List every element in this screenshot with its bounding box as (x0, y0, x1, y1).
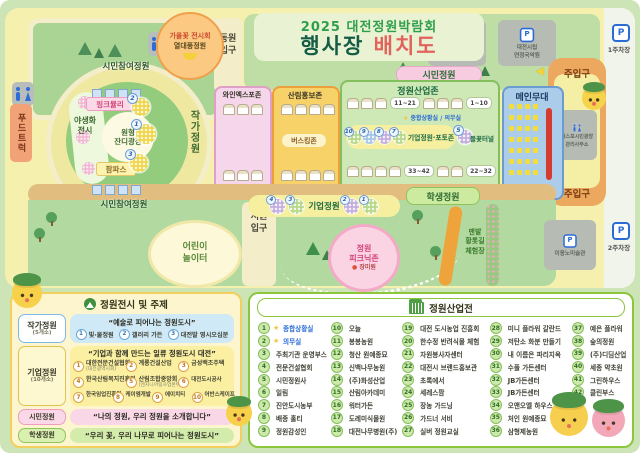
booth-range-label: 1~10 (470, 100, 488, 107)
booth-label: 한수정 반려식물 체험 (420, 336, 479, 346)
tent-icon (309, 170, 321, 181)
seat-block (533, 148, 538, 153)
item-label: 에이치티 (165, 392, 185, 398)
booth-icon (92, 185, 102, 195)
booth-number: 32 (490, 374, 502, 386)
picnic-label2: 피크닉존 (349, 254, 378, 264)
booth-range-pill: 11~21 (390, 97, 420, 109)
booth-number: 21 (402, 348, 414, 360)
seat-block (525, 126, 530, 131)
corporate-garden-item: 6 대전도시공사 (178, 377, 218, 389)
item-number: 5 (126, 377, 137, 388)
item-label: 빛·물정원 (89, 330, 114, 339)
booth-number: 19 (402, 322, 414, 334)
seat-block (509, 126, 514, 131)
seat-block (525, 115, 530, 120)
booth-number: 26 (402, 412, 414, 424)
industry-booth-item: 31수풀 가든센터 (490, 360, 568, 373)
industry-booth-item: 1★종합상황실 (258, 322, 327, 335)
seat-block (525, 148, 530, 153)
stage-seating (509, 104, 543, 184)
booth-icon (131, 185, 141, 195)
seat-block (525, 170, 530, 175)
barefoot-label3: 체험장 (465, 247, 484, 256)
industry-booth-item: 24세레스팜 (402, 386, 486, 399)
booth-label: 종합상황실 (283, 323, 313, 333)
booth-label: 워터가든 (349, 400, 373, 410)
garden-number-badge: 10 (344, 127, 354, 137)
industry-booth-item: 38숲의정원 (572, 335, 624, 348)
booth-number: 10 (331, 322, 343, 334)
main-stage-title: 메인무대 (502, 90, 562, 103)
seat-block (533, 104, 538, 109)
industry-booth-item: 9정원감성인 (258, 424, 327, 437)
restroom-icon (572, 122, 583, 134)
industry-booth-item: 7진안도시농부 (258, 399, 327, 412)
seat-block (525, 104, 530, 109)
exhibit-booth-row (92, 180, 144, 199)
booth-number: 28 (490, 322, 502, 334)
row-count: (5개소) (33, 330, 52, 336)
tent-row (280, 170, 336, 181)
booth-number: 15 (331, 386, 343, 398)
title-card: 2025 대전정원박람회 행사장 배치도 (254, 13, 484, 61)
booth-label: 주최기관 운영부스 (276, 349, 327, 359)
corporate-garden-item: 9 에이치티 (152, 392, 192, 403)
booth-label: 장농 가드닝 (420, 400, 453, 410)
booth-label: 저탄소 화분 만들기 (508, 336, 561, 346)
wildflower-label1: 야생화 (74, 116, 96, 126)
playground-label1: 어린이 (183, 242, 208, 254)
booth-label: 대전나무병원(주) (349, 426, 398, 436)
pink-muhly-label: 핑크뮬리 (96, 99, 124, 110)
participation-garden-top-label: 시민참여정원 (86, 60, 166, 72)
garden-number-badge: 3 (125, 149, 136, 160)
booth-label: 의무실 (283, 336, 301, 346)
tent-icon (423, 98, 435, 109)
seat-block (533, 159, 538, 164)
booth-label: JB가든센터 (508, 375, 540, 385)
poster-title-line2b: 배치도 (374, 34, 438, 58)
wildflower-label: 야생화 전시 (66, 116, 104, 137)
booth-number: 8 (258, 412, 270, 424)
seat-block (517, 159, 522, 164)
booth-range-label: 22~32 (470, 168, 492, 175)
booth-number: 35 (490, 412, 502, 424)
industry-booth-item: 19대전 도시농업 진흥회 (402, 322, 486, 335)
student-garden-pill: 학생정원 (406, 187, 480, 205)
tent-icon (323, 104, 335, 115)
legend-row-citizen: 시민정원 “나의 정원, 우리 정원을 소개합니다” (18, 409, 234, 424)
autumn-exhibit-badge: 가을꽃 전시회 열대풍정원 (156, 12, 224, 80)
booth-label: 숲의정원 (590, 336, 614, 346)
booth-label: 대전시 브랜드홍보관 (420, 362, 477, 372)
star-icon: ★ (273, 337, 280, 345)
legend-row-artist: 작가정원 (5개소) “예술로 피어나는 정원도시” 1 빛·물정원 2 (18, 314, 234, 343)
gugak-label1: 대전시립 (517, 45, 538, 52)
booth-label: (주)디딤산업 (590, 349, 626, 359)
garden-spot-icon: 1 (363, 199, 378, 214)
booth-label: 가드너 서비 (420, 413, 453, 423)
booth-label: 예은 플라워 (590, 323, 623, 333)
park-emblem-icon (84, 298, 96, 310)
booth-label: 미니 플라워 갈란드 (508, 323, 561, 333)
item-number: 2 (126, 361, 137, 372)
booth-number: 16 (331, 399, 343, 411)
booth-number: 34 (490, 399, 502, 411)
legend-row-corporate: 기업정원 (10개소) “기업과 함께 만드는 일류 정원도시 대전” 1 대한… (18, 346, 234, 406)
industry-booth-item: 21자원봉사자센터 (402, 348, 486, 361)
picnic-label1: 정원 (357, 244, 372, 254)
booth-number: 33 (490, 386, 502, 398)
industry-booth-item: 2★의무실 (258, 335, 327, 348)
item-label: 갤러리 가든 (132, 330, 163, 339)
seat-block (517, 126, 522, 131)
tent-icon (451, 166, 463, 177)
office-label1: 엑스포시민광장 (561, 134, 593, 141)
mascot-character (582, 86, 606, 110)
industry-booth-item: 26가드너 서비 (402, 412, 486, 425)
booth-number: 27 (402, 425, 414, 437)
tent-icon (281, 170, 293, 181)
parking-icon: P (563, 234, 577, 248)
industry-booth-item: 27실버 정원교실 (402, 424, 486, 437)
seat-block (509, 115, 514, 120)
parking-icon: P (520, 28, 534, 42)
item-number: 4 (73, 377, 84, 388)
poster-title-line1: 2025 대전정원박람회 (301, 16, 437, 35)
poster-title-line2a: 행사장 (300, 34, 364, 58)
industry-booth-item: 37예은 플라워 (572, 322, 624, 335)
tent-icon (251, 104, 263, 115)
booth-number: 24 (402, 386, 414, 398)
corp-photo-band: 10 9 8 7 기업정원·포토존 (346, 125, 456, 149)
restroom-icon (12, 82, 34, 106)
industry-booth-item: 23초록에서 (402, 373, 486, 386)
wine-expo-zone-title: 와인엑스포존 (214, 90, 270, 100)
corp-photo-label: 기업정원·포토존 (408, 132, 454, 142)
item-label: 대전발 영시오십분 (181, 330, 229, 339)
booth-range-label: 33~42 (408, 168, 430, 175)
booth-number: 11 (331, 335, 343, 347)
booth-number: 36 (490, 425, 502, 437)
booth-range-pill: 22~32 (466, 165, 496, 177)
tent-icon (389, 166, 401, 177)
booth-label: 도레미식물원 (349, 413, 385, 423)
tree-icon (412, 210, 423, 221)
row-name: 시민정원 (29, 413, 55, 421)
industry-booth-item: 32JB가든센터 (490, 373, 568, 386)
booth-label: 신백나무농원 (349, 362, 385, 372)
tent-icon (361, 98, 373, 109)
corporate-garden-band: 4 3 기업정원 2 1 (248, 195, 400, 217)
booth-label: 대전 도시농업 진흥회 (420, 323, 479, 333)
booth-number: 29 (490, 335, 502, 347)
seat-block (509, 159, 514, 164)
badge-line1: 가을꽃 전시회 (169, 32, 210, 41)
mascot-character (226, 400, 252, 426)
tent-icon (375, 166, 387, 177)
booth-number: 41 (572, 374, 584, 386)
booth-label: 진안도시농부 (276, 400, 312, 410)
tent-icon (295, 170, 307, 181)
garden-number-badge: 2 (340, 195, 350, 205)
tent-icon (295, 104, 307, 115)
legend-row-student: 학생정원 “우리 꽃, 우리 나무로 피어나는 정원도시” (18, 428, 234, 443)
tent-row (222, 170, 264, 181)
booth-number: 4 (258, 361, 270, 373)
garden-spot-icon: 2 (132, 98, 150, 116)
wildflower-tunnel-label: 들꽃터널 (470, 133, 494, 143)
parking2-label: 2주차장 (602, 242, 636, 252)
tree-icon (306, 242, 320, 255)
garden-number-badge: 1 (359, 195, 369, 205)
corporate-garden-item: 3 금성백조주택 (178, 361, 231, 373)
booth-number: 25 (402, 399, 414, 411)
office-label2: 관리사무소 (565, 142, 588, 149)
booth-number: 3 (258, 348, 270, 360)
corporate-garden-item: 4 한국산림복지진흥원 (73, 377, 126, 389)
booth-label: 일림 (276, 387, 288, 397)
seat-block (517, 104, 522, 109)
parking-icon: P (612, 222, 630, 240)
item-sublabel: (엔지니어링사업본부) (139, 383, 182, 388)
tent-row (280, 104, 336, 115)
seat-block (517, 170, 522, 175)
industry-booth-item: 22대전시 브랜드홍보관 (402, 360, 486, 373)
industry-booth-item: 28미니 플라워 갈란드 (490, 322, 568, 335)
booth-range-pill: 1~10 (466, 97, 492, 109)
legend-left-header: 정원전시 및 주제 (18, 297, 234, 311)
booth-label: 실버 정원교실 (420, 426, 459, 436)
expo-venue-map-poster: 가을꽃 전시회 열대풍정원 동원 입구 2025 대전정원박람회 행사장 배치도… (0, 0, 640, 453)
garden-spot-icon: 7 (393, 131, 406, 144)
parking-icon: P (612, 24, 630, 42)
industry-booth-item: 41그린하우스 (572, 373, 624, 386)
booth-number: 38 (572, 335, 584, 347)
seat-block (517, 137, 522, 142)
corporate-garden-item: 8 케이엠개발 (113, 392, 153, 403)
tent-icon (437, 98, 449, 109)
tree-icon (46, 212, 57, 223)
seat-block (509, 104, 514, 109)
seat-block (517, 115, 522, 120)
booth-number: 31 (490, 361, 502, 373)
item-number: 1 (73, 361, 84, 372)
busking-zone-label: 버스킹존 (291, 136, 317, 146)
industry-booth-item: 16워터가든 (331, 399, 398, 412)
booth-number: 6 (258, 386, 270, 398)
booth-number: 39 (572, 348, 584, 360)
industry-booth-item: 12청산 원예종묘 (331, 348, 398, 361)
tree-icon (430, 246, 441, 257)
seat-block (525, 137, 530, 142)
main-entrance-top-label: 주입구 (550, 66, 604, 80)
industry-booth-item: 39(주)디딤산업 (572, 348, 624, 361)
booth-number: 17 (331, 412, 343, 424)
booth-label: 산림아카데미 (349, 387, 385, 397)
artist-garden-tag: 작가정원 (5개소) (18, 314, 66, 343)
corporate-garden-item: 1 대한전문건설협회(대전광역시회) (73, 361, 126, 373)
barefoot-path-label: 맨발 황톳길 체험장 (456, 228, 494, 256)
seat-block (509, 148, 514, 153)
item-number: 7 (73, 392, 84, 403)
museum-label: 이응노미술관 (555, 251, 586, 258)
tent-icon (361, 166, 373, 177)
corporate-garden-item: 10 어반스케이프 (192, 392, 232, 403)
item-label: 금성백조주택 (191, 361, 224, 368)
industry-booth-item: 6일림 (258, 386, 327, 399)
garden-spot-icon: 3 (130, 154, 148, 172)
badge-line2: 열대풍정원 (174, 42, 206, 51)
rose-dot-icon: ● (352, 264, 357, 271)
industry-booth-item: 13신백나무농원 (331, 360, 398, 373)
tent-icon (347, 98, 359, 109)
legend-right-title: 정원산업전 (429, 301, 473, 315)
booth-number: 9 (258, 425, 270, 437)
artist-garden-items: 1 빛·물정원 2 갤러리 가든 3 대전발 영시오십분 (73, 329, 231, 340)
industry-booth-item: 40세종 약초원 (572, 360, 624, 373)
booth-number: 14 (331, 374, 343, 386)
booth-label: 배종 홀티 (276, 413, 303, 423)
tent-row: 11~21 1~10 (346, 97, 494, 109)
picnic-zone: 정원 피크닉존 ● 장미원 (328, 224, 400, 292)
seat-block (533, 115, 538, 120)
booth-label: 전문건설협회 (276, 362, 312, 372)
industry-booth-item: 18대전나무병원(주) (331, 424, 398, 437)
building-icon (409, 302, 424, 314)
industry-booth-item: 3주최기관 운영부스 (258, 348, 327, 361)
tent-icon (347, 166, 359, 177)
booth-label: 클린부스 (590, 387, 614, 397)
garden-spot-icon: 3 (289, 199, 304, 214)
industry-booth-item: 25장농 가드닝 (402, 399, 486, 412)
booth-label: (주)화성산업 (349, 375, 385, 385)
situation-room-note: ★ 종합상황실 / 의무실 (372, 113, 492, 122)
corporate-garden-items: 1 대한전문건설협회(대전광역시회) 2 계룡건설산업 3 금성백조주택 (73, 361, 231, 404)
legend-garden-exhibits-panel: 정원전시 및 주제 작가정원 (5개소) “예술로 피어나는 정원도시” 1 빛… (10, 292, 242, 448)
artist-garden-item: 3 대전발 영시오십분 (168, 329, 229, 340)
row-name: 작가정원 (27, 321, 56, 330)
forest-promo-zone-title: 산림홍보존 (272, 90, 338, 101)
gugak-center: P 대전시립 연정국악원 (498, 20, 556, 66)
student-garden-tag: 학생정원 (18, 428, 66, 443)
tree-icon (108, 44, 122, 57)
item-number: 6 (178, 377, 189, 388)
industry-booth-item: 17도레미식물원 (331, 412, 398, 425)
booth-number: 40 (572, 361, 584, 373)
booth-number: 7 (258, 399, 270, 411)
booth-number: 12 (331, 348, 343, 360)
tent-icon (223, 170, 235, 181)
booth-label: 초록에서 (420, 375, 444, 385)
mascot-character (12, 278, 42, 308)
seat-block (509, 137, 514, 142)
booth-number: 20 (402, 335, 414, 347)
garden-number-badge: 7 (389, 127, 399, 137)
industry-column-3: 19대전 도시농업 진흥회20한수정 반려식물 체험21자원봉사자센터22대전시… (402, 322, 486, 437)
industry-column-1: 1★종합상황실2★의무실3주최기관 운영부스4전문건설협회5시민정원사6일림7진… (258, 322, 327, 437)
tent-row (222, 104, 264, 115)
garden-number-badge: 2 (127, 93, 138, 104)
industry-booth-item: 11봉봉농원 (331, 335, 398, 348)
garden-number-badge: 4 (266, 195, 276, 205)
booth-label: 내 이름은 파리지옥 (508, 349, 561, 359)
playground-label2: 놀이터 (183, 254, 208, 266)
garden-industry-zone-title: 정원산업존 (340, 84, 496, 97)
item-label: 계룡건설산업 (139, 361, 172, 368)
tree-icon (78, 42, 92, 55)
corporate-garden-tag: 기업정원 (10개소) (18, 346, 66, 406)
star-icon: ★ (403, 115, 408, 122)
booth-label: 그린하우스 (590, 375, 620, 385)
garden-spot-icon: 1 (136, 124, 156, 144)
industry-booth-item: 29저탄소 화분 만들기 (490, 335, 568, 348)
item-number: 8 (113, 392, 124, 403)
industry-booth-item: 14(주)화성산업 (331, 373, 398, 386)
booth-icon (118, 185, 128, 195)
booth-label: 자원봉사자센터 (420, 349, 462, 359)
booth-label: 오늘 (349, 323, 361, 333)
citizen-garden-tag: 시민정원 (18, 409, 66, 424)
item-number: 1 (76, 329, 87, 340)
food-truck-zone: 푸드트럭 (10, 104, 32, 162)
garden-spot-icon: 2 (344, 199, 359, 214)
industry-column-2: 10오늘11봉봉농원12청산 원예종묘13신백나무농원14(주)화성산업15산림… (331, 322, 398, 437)
row-theme: “우리 꽃, 우리 나무로 피어나는 정원도시” (73, 431, 231, 440)
booth-number: 5 (258, 374, 270, 386)
row-name: 학생정원 (29, 431, 55, 439)
item-number: 9 (152, 392, 163, 403)
garden-number-badge: 5 (453, 125, 464, 136)
garden-number-badge: 3 (285, 195, 295, 205)
artist-garden-label: 작가정원 (186, 110, 201, 154)
item-number: 2 (119, 329, 130, 340)
booth-range-label: 11~21 (394, 100, 416, 107)
item-label: 케이엠개발 (126, 392, 151, 398)
row-theme: “기업과 함께 만드는 일류 정원도시 대전” (73, 349, 231, 358)
booth-label: 처인 원예종묘 (508, 413, 547, 423)
tent-icon (323, 170, 335, 181)
mascot-character (550, 398, 588, 436)
corporate-garden-item: 2 계룡건설산업 (126, 361, 179, 373)
booth-label: 봉봉농원 (349, 336, 373, 346)
seat-block (517, 148, 522, 153)
tree-icon (34, 228, 45, 239)
pampas-label: 팜파스 (106, 164, 127, 175)
seat-block (533, 170, 538, 175)
industry-booth-item: 10오늘 (331, 322, 398, 335)
playground: 어린이 놀이터 (148, 220, 242, 288)
food-truck-label: 푸드트럭 (15, 113, 28, 153)
lawn-label1: 원형 (121, 128, 135, 137)
legend-left-title: 정원전시 및 주제 (100, 297, 168, 311)
wildflower-label2: 전시 (78, 126, 93, 136)
tent-icon (251, 170, 263, 181)
tent-icon (223, 104, 235, 115)
booth-range-pill: 33~42 (404, 165, 434, 177)
booth-number: 2 (258, 335, 270, 347)
legend-right-header: 정원산업전 (257, 298, 625, 317)
garden-number-badge: 1 (131, 119, 142, 130)
flower-bed-icon (82, 162, 95, 175)
garden-number-badge: 8 (374, 127, 384, 137)
booth-label: 세레스팜 (420, 387, 444, 397)
industry-booth-item: 30내 이름은 파리지옥 (490, 348, 568, 361)
barefoot-label2: 황톳길 (465, 237, 484, 246)
tent-icon (281, 104, 293, 115)
seat-block (533, 126, 538, 131)
